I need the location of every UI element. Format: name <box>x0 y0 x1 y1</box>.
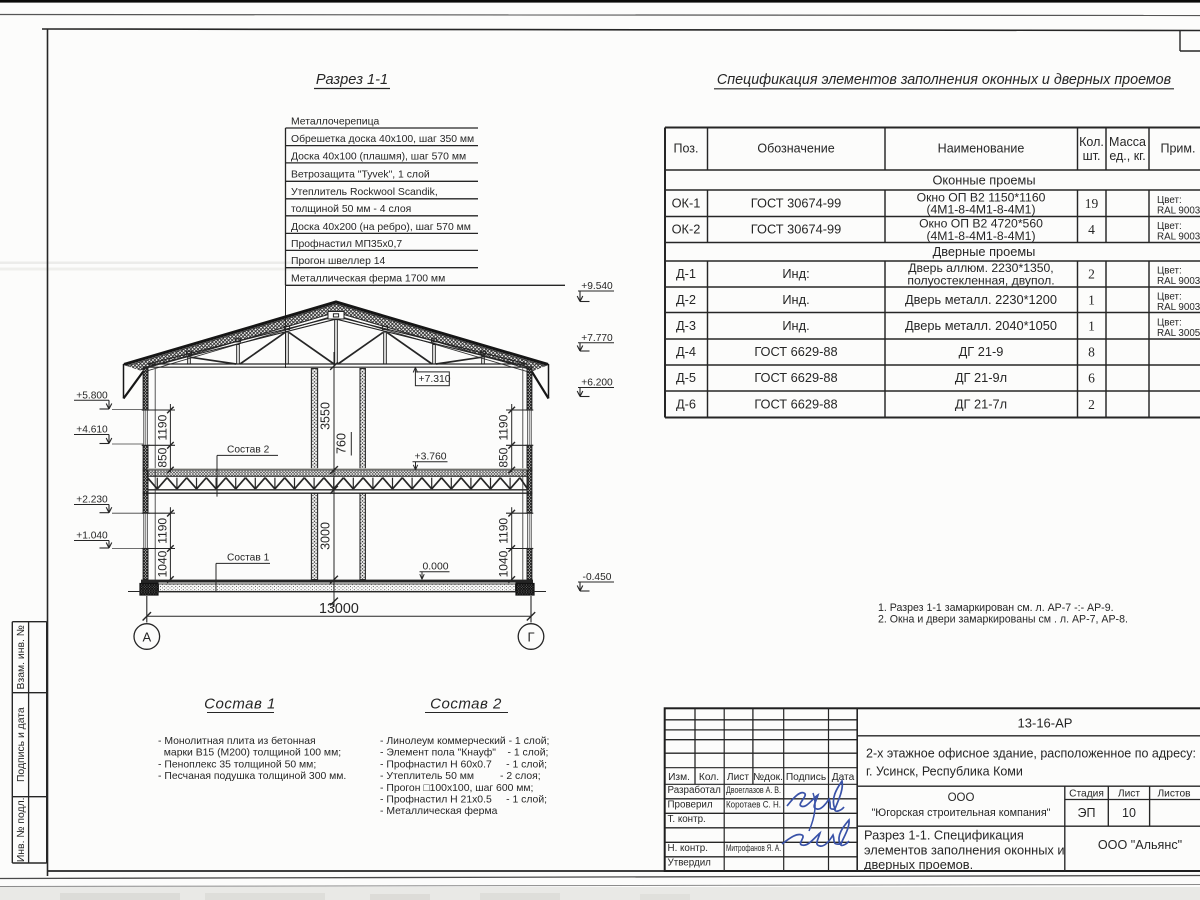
svg-text:марки В15 (М200) толщиной 100: марки В15 (М200) толщиной 100 мм; <box>158 748 341 759</box>
svg-text:ГОСТ 30674-99: ГОСТ 30674-99 <box>751 222 841 237</box>
svg-text:1: 1 <box>1088 318 1095 333</box>
svg-text:Подпись и дата: Подпись и дата <box>16 707 27 782</box>
svg-text:- Прогон □100х100, шаг 600 мм;: - Прогон □100х100, шаг 600 мм; <box>380 783 533 794</box>
svg-text:№док.: №док. <box>753 772 783 783</box>
svg-text:ОК-2: ОК-2 <box>672 222 701 237</box>
svg-text:Дата: Дата <box>832 772 855 783</box>
svg-text:6: 6 <box>1088 371 1095 386</box>
svg-text:Цвет:: Цвет: <box>1157 195 1182 206</box>
svg-text:Д-6: Д-6 <box>676 396 696 411</box>
svg-text:дверных проемов.: дверных проемов. <box>864 857 973 872</box>
svg-text:ООО "Альянс": ООО "Альянс" <box>1098 838 1182 852</box>
svg-text:Дверь металл. 2230*1200: Дверь металл. 2230*1200 <box>905 292 1057 307</box>
svg-text:Профнастил МП35х0,7: Профнастил МП35х0,7 <box>291 238 402 250</box>
svg-text:Подпись: Подпись <box>786 772 826 783</box>
svg-text:ЭП: ЭП <box>1078 806 1096 820</box>
svg-text:Изм.: Изм. <box>668 772 690 783</box>
svg-text:Д-1: Д-1 <box>676 266 696 281</box>
svg-text:ГОСТ 6629-88: ГОСТ 6629-88 <box>754 396 837 411</box>
svg-text:Разрез 1-1: Разрез 1-1 <box>316 72 388 88</box>
svg-text:- Металлическая ферма: - Металлическая ферма <box>380 805 498 817</box>
svg-text:2: 2 <box>1088 397 1095 412</box>
svg-text:Двоеглазов А. В.: Двоеглазов А. В. <box>726 785 781 795</box>
svg-text:(4М1-8-4М1-8-4М1): (4М1-8-4М1-8-4М1) <box>926 203 1035 217</box>
svg-text:Ветрозащита "Tyvek", 1 слой: Ветрозащита "Tyvek", 1 слой <box>291 170 430 181</box>
svg-text:1190: 1190 <box>497 518 511 544</box>
svg-text:полуостекленная, двупол.: полуостекленная, двупол. <box>907 273 1054 287</box>
svg-text:RAL 9003: RAL 9003 <box>1157 276 1200 287</box>
svg-text:- Линолеум коммерческий - 1 сл: - Линолеум коммерческий - 1 слой; <box>380 736 549 747</box>
svg-text:Проверил: Проверил <box>668 800 713 811</box>
svg-text:2-х этажное офисное здание, ра: 2-х этажное офисное здание, расположенно… <box>866 747 1196 761</box>
svg-text:850: 850 <box>497 447 511 467</box>
svg-text:1040: 1040 <box>156 550 170 577</box>
svg-text:- Профнастил Н 60х0.7 - 1: - Профнастил Н 60х0.7 - 1 слой; <box>380 758 547 770</box>
svg-text:Наименование: Наименование <box>938 142 1025 156</box>
svg-text:Утеплитель Rockwool Scandik,: Утеплитель Rockwool Scandik, <box>291 187 438 198</box>
svg-text:+3.760: +3.760 <box>415 451 447 462</box>
svg-text:Лист: Лист <box>727 772 749 783</box>
svg-text:А: А <box>142 630 151 645</box>
svg-text:Дверь металл. 2040*1050: Дверь металл. 2040*1050 <box>905 318 1057 333</box>
svg-text:Обозначение: Обозначение <box>757 142 834 156</box>
svg-text:- Утеплитель 50 мм - 2: - Утеплитель 50 мм - 2 слоя; <box>380 771 541 782</box>
svg-text:(4М1-8-4М1-8-4М1): (4М1-8-4М1-8-4М1) <box>926 229 1035 243</box>
svg-text:19: 19 <box>1085 196 1099 211</box>
svg-text:Д-5: Д-5 <box>676 370 696 385</box>
svg-text:0.000: 0.000 <box>423 562 449 573</box>
svg-text:850: 850 <box>156 447 170 467</box>
svg-text:"Югорская строительная компани: "Югорская строительная компания" <box>871 807 1050 819</box>
svg-text:2: 2 <box>1088 267 1095 282</box>
svg-text:Т. контр.: Т. контр. <box>668 814 706 825</box>
svg-text:ед., кг.: ед., кг. <box>1109 149 1145 163</box>
svg-text:Кол.: Кол. <box>1079 135 1104 149</box>
svg-text:Д-3: Д-3 <box>676 318 696 333</box>
svg-text:Состав 2: Состав 2 <box>430 696 502 713</box>
svg-text:ГОСТ 6629-88: ГОСТ 6629-88 <box>754 370 837 385</box>
svg-text:1: 1 <box>1088 292 1095 307</box>
svg-text:1040: 1040 <box>497 550 511 577</box>
svg-text:ГОСТ 6629-88: ГОСТ 6629-88 <box>754 344 837 359</box>
svg-text:Цвет:: Цвет: <box>1157 266 1182 277</box>
svg-text:1190: 1190 <box>497 414 511 440</box>
svg-text:г. Усинск, Республика Коми: г. Усинск, Республика Коми <box>866 765 1023 779</box>
svg-text:Митрофанов Я. А.: Митрофанов Я. А. <box>726 843 781 853</box>
svg-text:Г: Г <box>527 630 534 645</box>
svg-text:Состав 2: Состав 2 <box>227 445 270 456</box>
svg-text:1190: 1190 <box>156 518 170 544</box>
svg-text:Инд.: Инд. <box>782 318 809 333</box>
svg-text:Д-4: Д-4 <box>676 344 696 359</box>
svg-text:Коротаев С. Н.: Коротаев С. Н. <box>726 800 781 810</box>
svg-text:Разработал: Разработал <box>668 785 722 796</box>
svg-text:3000: 3000 <box>319 522 333 550</box>
svg-text:3550: 3550 <box>319 402 333 430</box>
svg-text:- Профнастил Н 21х0.5 - 1: - Профнастил Н 21х0.5 - 1 слой; <box>380 794 547 806</box>
svg-text:Обрешетка доска 40х100, шаг 35: Обрешетка доска 40х100, шаг 350 мм <box>291 133 474 145</box>
svg-text:ОК-1: ОК-1 <box>672 195 701 210</box>
svg-text:Инд:: Инд: <box>782 266 809 281</box>
svg-text:Цвет:: Цвет: <box>1157 221 1182 232</box>
svg-text:13-16-АР: 13-16-АР <box>1018 716 1073 731</box>
svg-text:Поз.: Поз. <box>674 142 699 156</box>
svg-text:Дверные проемы: Дверные проемы <box>933 244 1036 259</box>
svg-text:10: 10 <box>1122 806 1136 820</box>
svg-text:13000: 13000 <box>319 601 359 617</box>
svg-text:Кол.: Кол. <box>699 772 719 783</box>
svg-text:- Песчаная подушка толщиной 30: - Песчаная подушка толщиной 300 мм. <box>158 771 346 782</box>
svg-text:ДГ 21-7л: ДГ 21-7л <box>955 396 1007 411</box>
svg-text:Металлическая ферма 1700 мм: Металлическая ферма 1700 мм <box>291 273 445 285</box>
svg-text:Разрез 1-1. Спецификация: Разрез 1-1. Спецификация <box>864 828 1024 843</box>
svg-text:толщиной 50 мм - 4 слоя: толщиной 50 мм - 4 слоя <box>291 204 411 215</box>
svg-text:Инд.: Инд. <box>782 292 809 307</box>
svg-text:Д-2: Д-2 <box>676 292 696 307</box>
svg-text:RAL 9003: RAL 9003 <box>1157 302 1200 313</box>
svg-text:Оконные проемы: Оконные проемы <box>932 173 1035 188</box>
svg-text:Цвет:: Цвет: <box>1157 291 1182 302</box>
svg-text:- Пеноплекс 35 толщиной 50 мм;: - Пеноплекс 35 толщиной 50 мм; <box>158 759 316 770</box>
svg-text:Прогон швеллер 14: Прогон швеллер 14 <box>291 256 386 267</box>
svg-text:Цвет:: Цвет: <box>1157 317 1182 328</box>
svg-text:Стадия: Стадия <box>1069 789 1104 800</box>
svg-text:ООО: ООО <box>948 792 975 804</box>
svg-text:1. Разрез 1-1 замаркирован см.: 1. Разрез 1-1 замаркирован см. л. АР-7 -… <box>878 602 1114 614</box>
svg-text:Лист: Лист <box>1118 789 1140 800</box>
svg-text:Спецификация элементов заполне: Спецификация элементов заполнения оконны… <box>717 72 1172 88</box>
svg-text:Состав 1: Состав 1 <box>227 553 270 564</box>
svg-text:ГОСТ 30674-99: ГОСТ 30674-99 <box>751 195 841 210</box>
svg-text:Инв. № подл.: Инв. № подл. <box>16 797 27 862</box>
svg-text:Металлочерепица: Металлочерепица <box>291 116 380 127</box>
svg-text:- Монолитная плита из бетонная: - Монолитная плита из бетонная <box>158 735 316 747</box>
svg-text:1190: 1190 <box>156 414 170 440</box>
svg-text:2. Окна и двери замаркированы: 2. Окна и двери замаркированы см . л. АР… <box>878 614 1128 626</box>
svg-text:8: 8 <box>1088 345 1095 360</box>
svg-text:760: 760 <box>335 433 349 454</box>
svg-text:Доска 40х100 (плашмя), шаг 570: Доска 40х100 (плашмя), шаг 570 мм <box>291 151 466 162</box>
svg-text:элементов заполнения оконных и: элементов заполнения оконных и <box>864 843 1065 858</box>
svg-text:Масса: Масса <box>1109 135 1146 149</box>
svg-text:- Элемент пола "Кнауф" - 1: - Элемент пола "Кнауф" - 1 слой; <box>380 747 548 759</box>
svg-text:Н. контр.: Н. контр. <box>668 843 708 854</box>
svg-text:RAL 9003: RAL 9003 <box>1157 205 1200 216</box>
svg-text:Состав 1: Состав 1 <box>204 696 276 713</box>
svg-text:Листов: Листов <box>1157 789 1190 800</box>
svg-text:+7.310: +7.310 <box>419 374 451 385</box>
svg-text:Взам. инв. №: Взам. инв. № <box>16 625 27 689</box>
svg-text:Доска 40х200 (на ребро), шаг 5: Доска 40х200 (на ребро), шаг 570 мм <box>291 221 471 233</box>
svg-text:ДГ 21-9л: ДГ 21-9л <box>955 370 1007 385</box>
svg-text:ДГ 21-9: ДГ 21-9 <box>959 344 1004 359</box>
svg-text:Утвердил: Утвердил <box>668 858 712 869</box>
svg-text:RAL 9003: RAL 9003 <box>1157 232 1200 243</box>
svg-text:шт.: шт. <box>1083 149 1101 163</box>
svg-text:RAL 3005: RAL 3005 <box>1157 328 1200 339</box>
svg-text:Прим.: Прим. <box>1161 142 1196 156</box>
svg-text:4: 4 <box>1088 222 1095 237</box>
